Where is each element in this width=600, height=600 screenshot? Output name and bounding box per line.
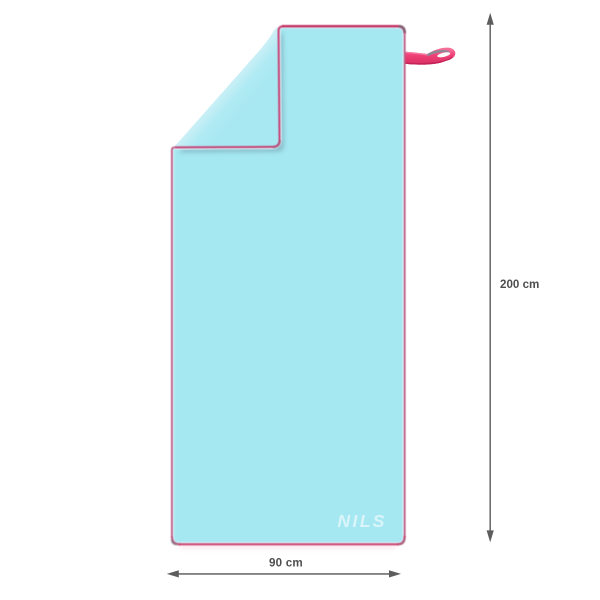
- svg-text:NILS: NILS: [338, 511, 387, 531]
- svg-text:90 cm: 90 cm: [269, 557, 303, 570]
- svg-text:200 cm: 200 cm: [500, 278, 539, 291]
